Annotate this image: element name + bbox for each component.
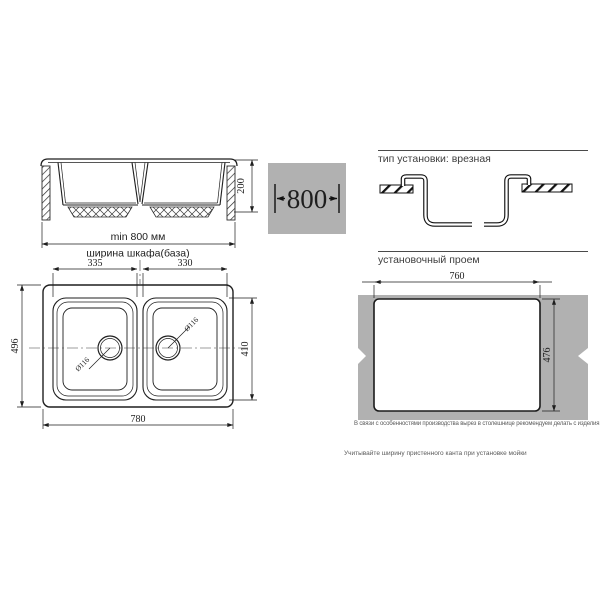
min-width-label: min 800 мм (111, 231, 166, 243)
sink-plan-outline (43, 285, 233, 407)
size-badge-drawing: 800 (268, 163, 346, 234)
dim-right-bowl-label: 330 (178, 258, 193, 269)
mount-section-drawing (378, 170, 590, 248)
side-view-drawing: 200 min 800 мм ширина шкафа(база) (28, 146, 270, 258)
size-badge-value: 800 (287, 184, 328, 214)
size-badge: 800 (268, 163, 346, 234)
edge-note: Учитывайте ширину пристенного канта при … (344, 450, 527, 457)
divider-rule-bottom (378, 251, 588, 252)
drain-left-label: Ø116 (73, 355, 91, 373)
drain-right (156, 327, 189, 360)
cutout-heading: установочный проем (378, 254, 480, 266)
plan-view-drawing: Ø116 Ø116 335 330 780 (5, 256, 267, 451)
cutout-drawing: 760 476 (352, 268, 592, 425)
dim-cutout-depth-label: 476 (542, 348, 553, 363)
divider-rule-top (378, 150, 588, 151)
dim-depth-label: 496 (10, 339, 21, 354)
dim-bowl-depth-label: 410 (240, 342, 251, 357)
drain-right-label: Ø116 (182, 315, 200, 333)
sink-rim-profile (403, 177, 529, 225)
production-note: В связи с особенностями производства выр… (354, 421, 600, 427)
dim-width-label: 780 (131, 414, 146, 425)
sink-side-profile (41, 159, 237, 217)
dim-left-bowl-label: 335 (88, 258, 103, 269)
dim-cutout-width-label: 760 (450, 271, 465, 282)
countertop-bars (380, 184, 572, 193)
sink-spec-sheet: 200 min 800 мм ширина шкафа(база) 800 (0, 0, 600, 600)
drain-left (89, 336, 122, 369)
install-type-heading: тип установки: врезная (378, 153, 491, 165)
dim-height-label: 200 (236, 178, 247, 194)
cutout-opening (374, 299, 540, 411)
